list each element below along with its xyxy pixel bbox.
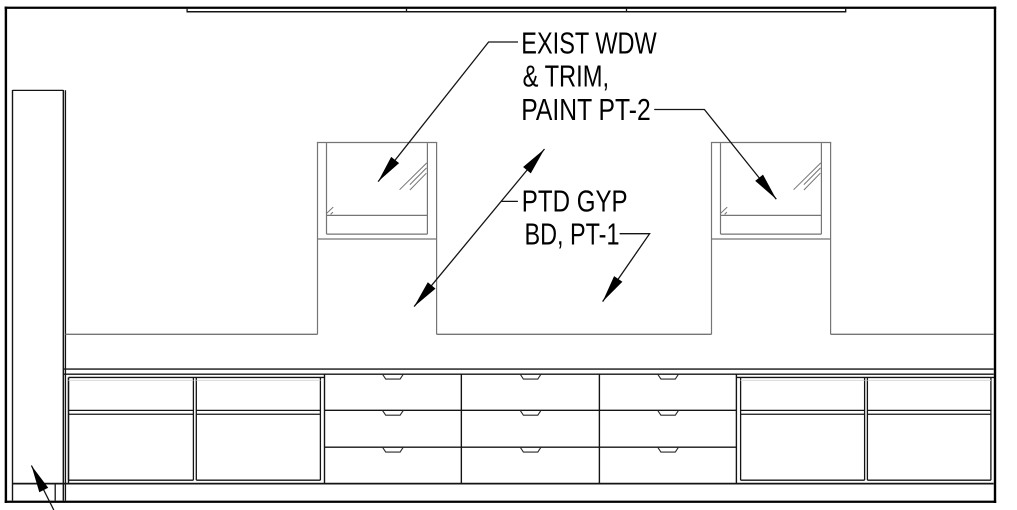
svg-text:PAINT PT-2: PAINT PT-2 (521, 93, 650, 127)
svg-text:BD, PT-1: BD, PT-1 (525, 217, 620, 251)
svg-text:& TRIM,: & TRIM, (523, 60, 610, 94)
svg-text:PTD GYP: PTD GYP (522, 184, 628, 218)
svg-text:EXIST WDW: EXIST WDW (521, 27, 656, 61)
